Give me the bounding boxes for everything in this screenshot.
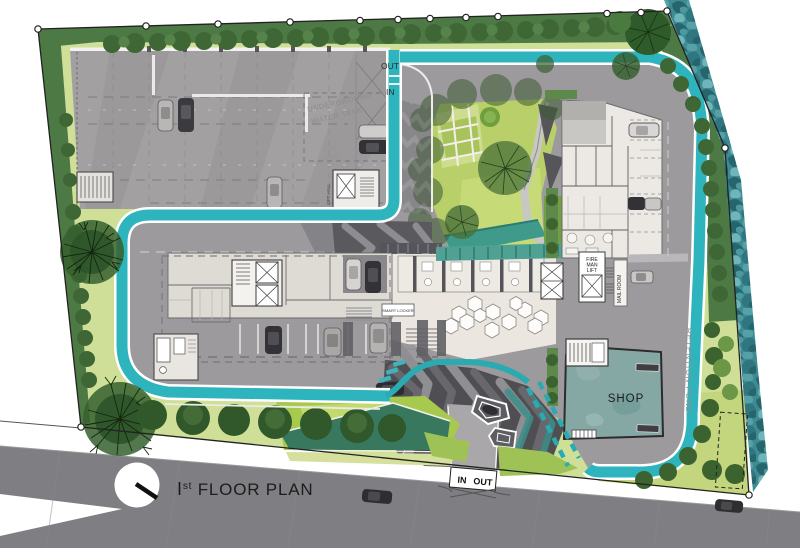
svg-text:OUT: OUT — [381, 61, 399, 71]
svg-text:SMART LOCKER: SMART LOCKER — [382, 308, 414, 313]
svg-text:LIFT HALL: LIFT HALL — [326, 183, 331, 205]
svg-text:Ist FLOOR PLAN: Ist FLOOR PLAN — [177, 479, 313, 499]
svg-text:LIFT: LIFT — [587, 268, 597, 274]
svg-text:IN: IN — [386, 87, 395, 97]
svg-text:IN: IN — [457, 475, 467, 486]
svg-text:MAIL ROOM: MAIL ROOM — [617, 275, 623, 303]
svg-text:OUT: OUT — [473, 476, 493, 488]
svg-text:SHOP: SHOP — [608, 393, 645, 405]
svg-text:RETENTION POND: RETENTION POND — [684, 328, 693, 414]
